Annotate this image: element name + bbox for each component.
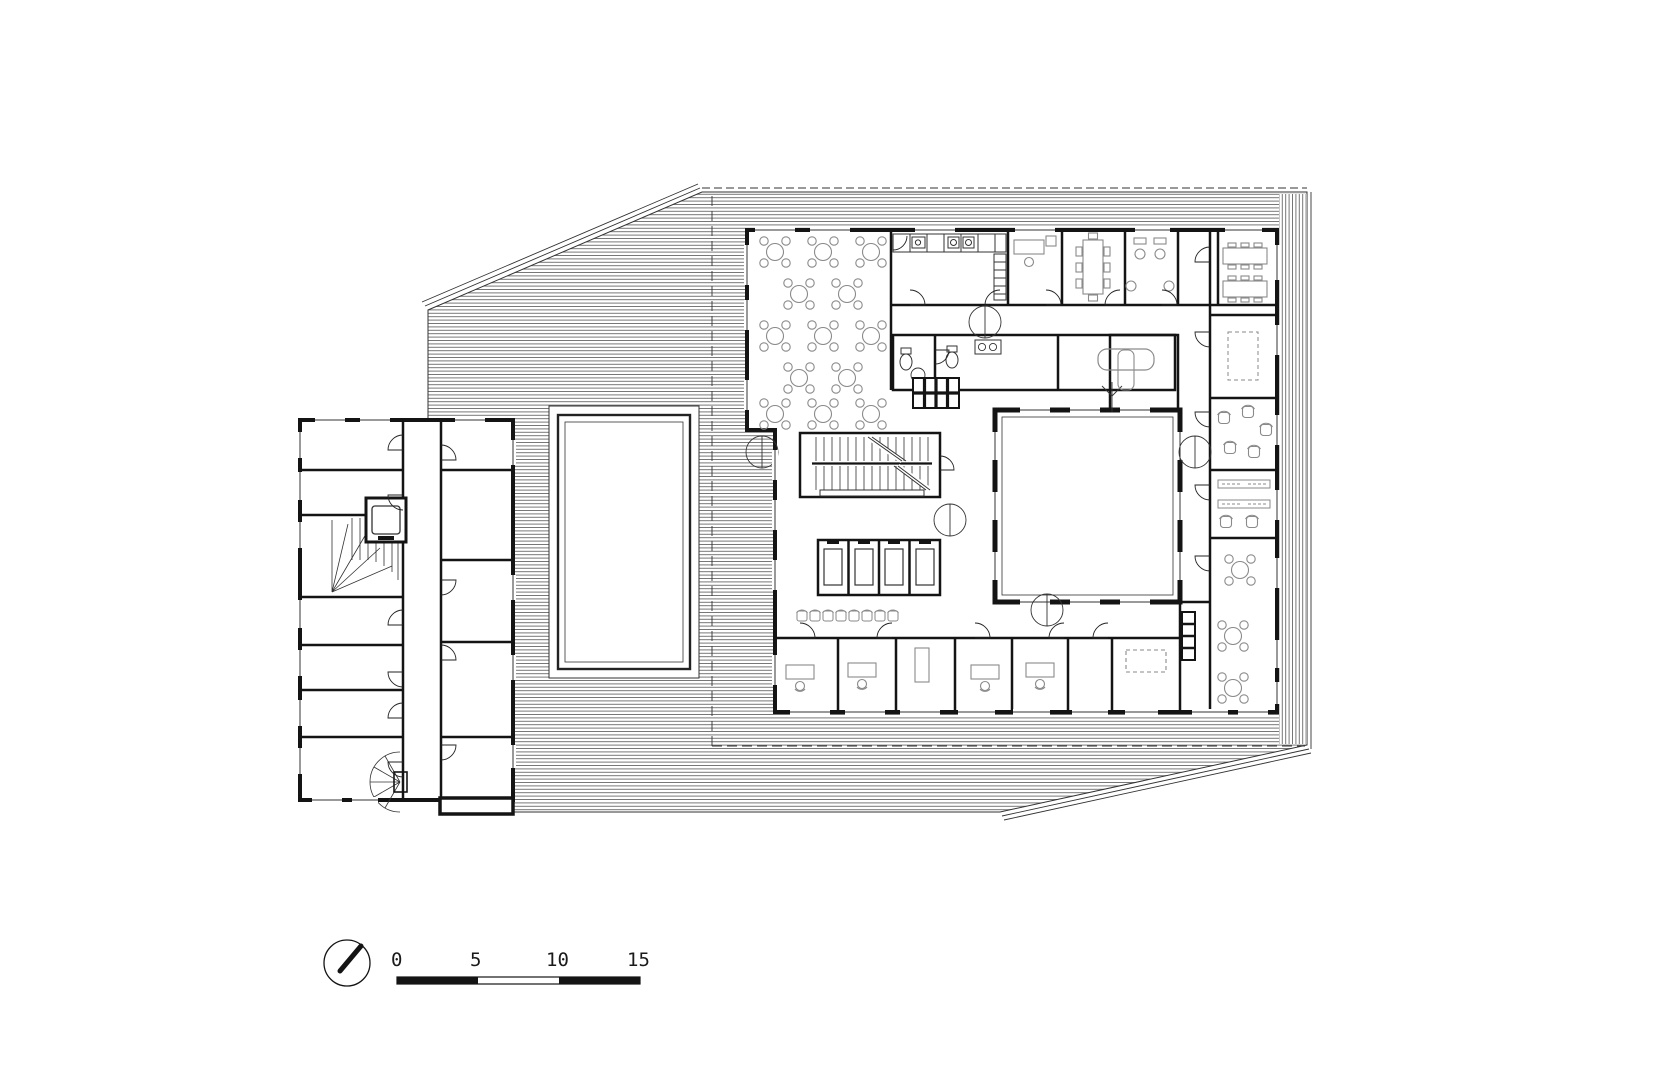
stair-handrail <box>820 490 924 496</box>
left-building-annex <box>440 798 513 814</box>
architectural-floor-plan: 0 5 10 15 <box>0 0 1653 1086</box>
duct-shaft <box>913 378 959 408</box>
north-arrow-icon <box>324 940 370 986</box>
left-building-elevator <box>366 498 406 542</box>
scale-bar-segment-3 <box>559 977 640 984</box>
courtyard <box>995 410 1180 602</box>
scale-bar-segment-1 <box>397 977 478 984</box>
main-building <box>746 230 1277 712</box>
left-building-outline <box>300 420 513 800</box>
scale-bar: 0 5 10 15 <box>391 949 650 984</box>
stair-core <box>800 433 940 497</box>
roof-right-strip-hatch <box>1279 194 1307 744</box>
scale-label-0: 0 <box>391 949 402 971</box>
scale-label-10: 10 <box>546 949 569 971</box>
elevator-bank <box>818 540 940 595</box>
floor-plan-drawing: 0 5 10 15 <box>0 0 1653 1086</box>
scale-label-5: 5 <box>470 949 481 971</box>
scale-label-15: 15 <box>627 949 650 971</box>
roof-skylight-pool <box>549 406 699 678</box>
bookshelf <box>1182 612 1195 660</box>
left-building <box>300 420 513 814</box>
